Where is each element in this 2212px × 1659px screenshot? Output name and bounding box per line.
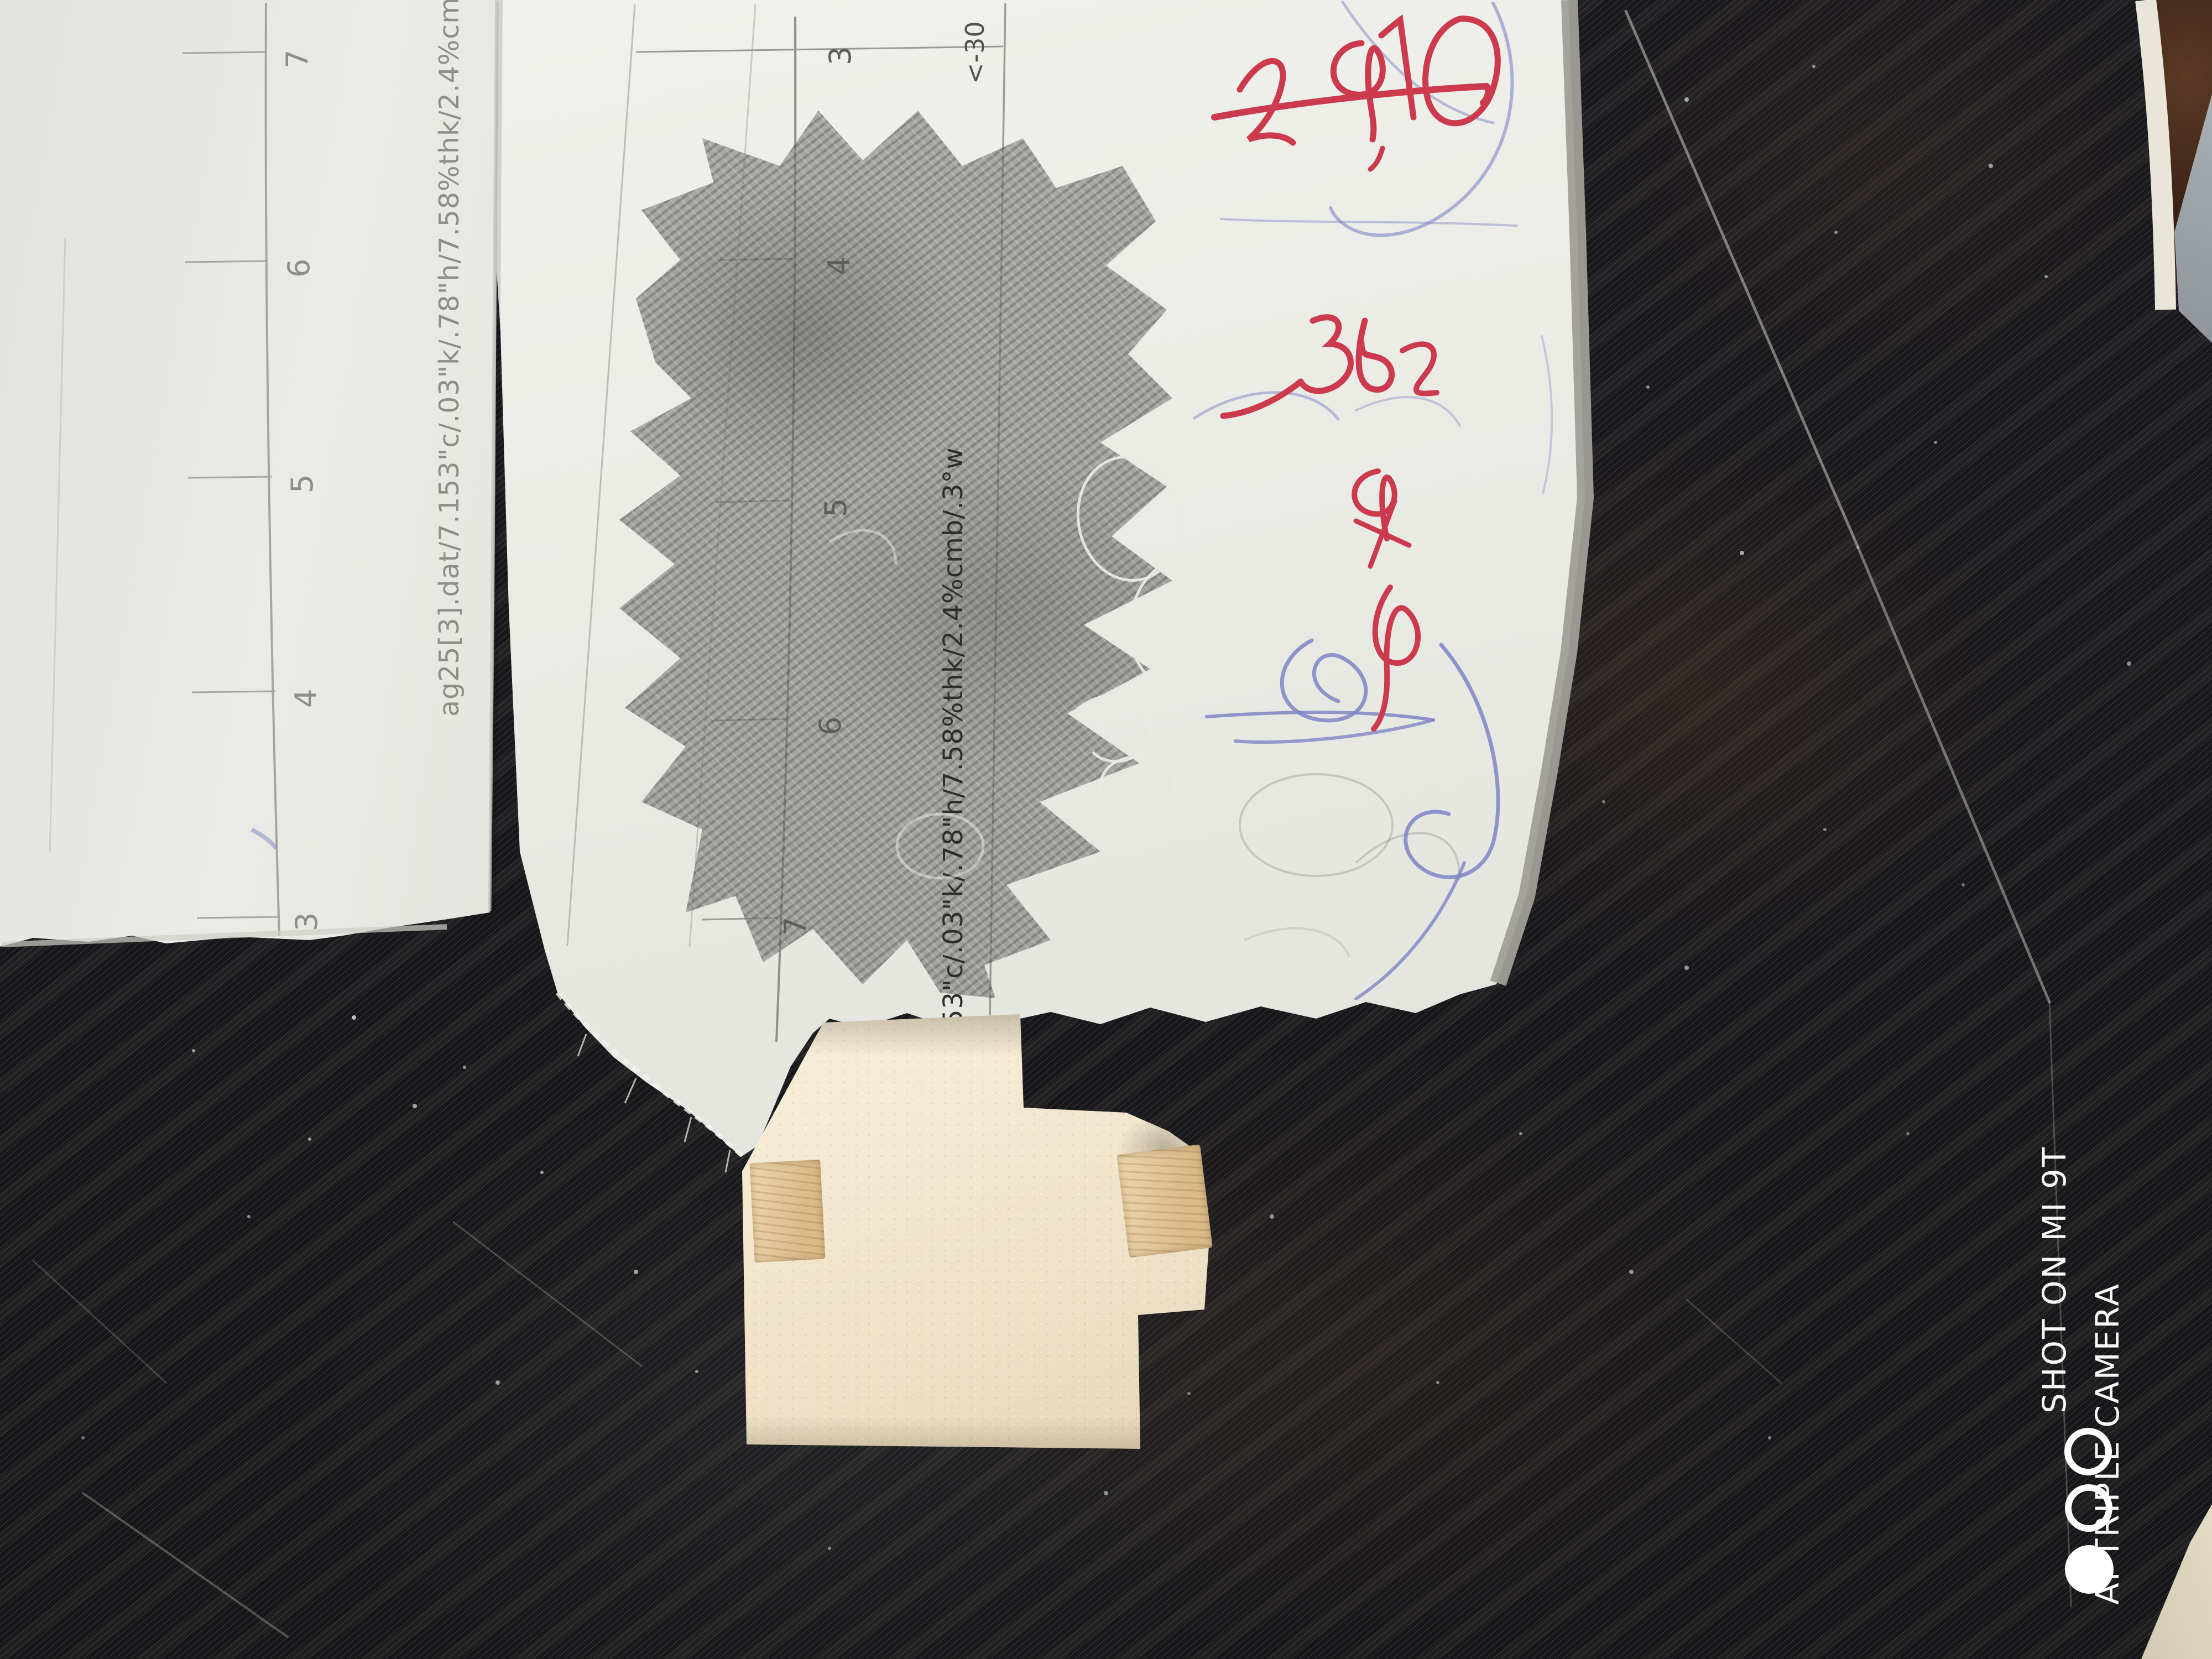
photo-scene: 7 6 5 4 3 ag25[3].dat/7.153"c/.03"k/.78"… — [0, 0, 2212, 1659]
watermark-logo-circles — [0, 0, 2212, 1659]
